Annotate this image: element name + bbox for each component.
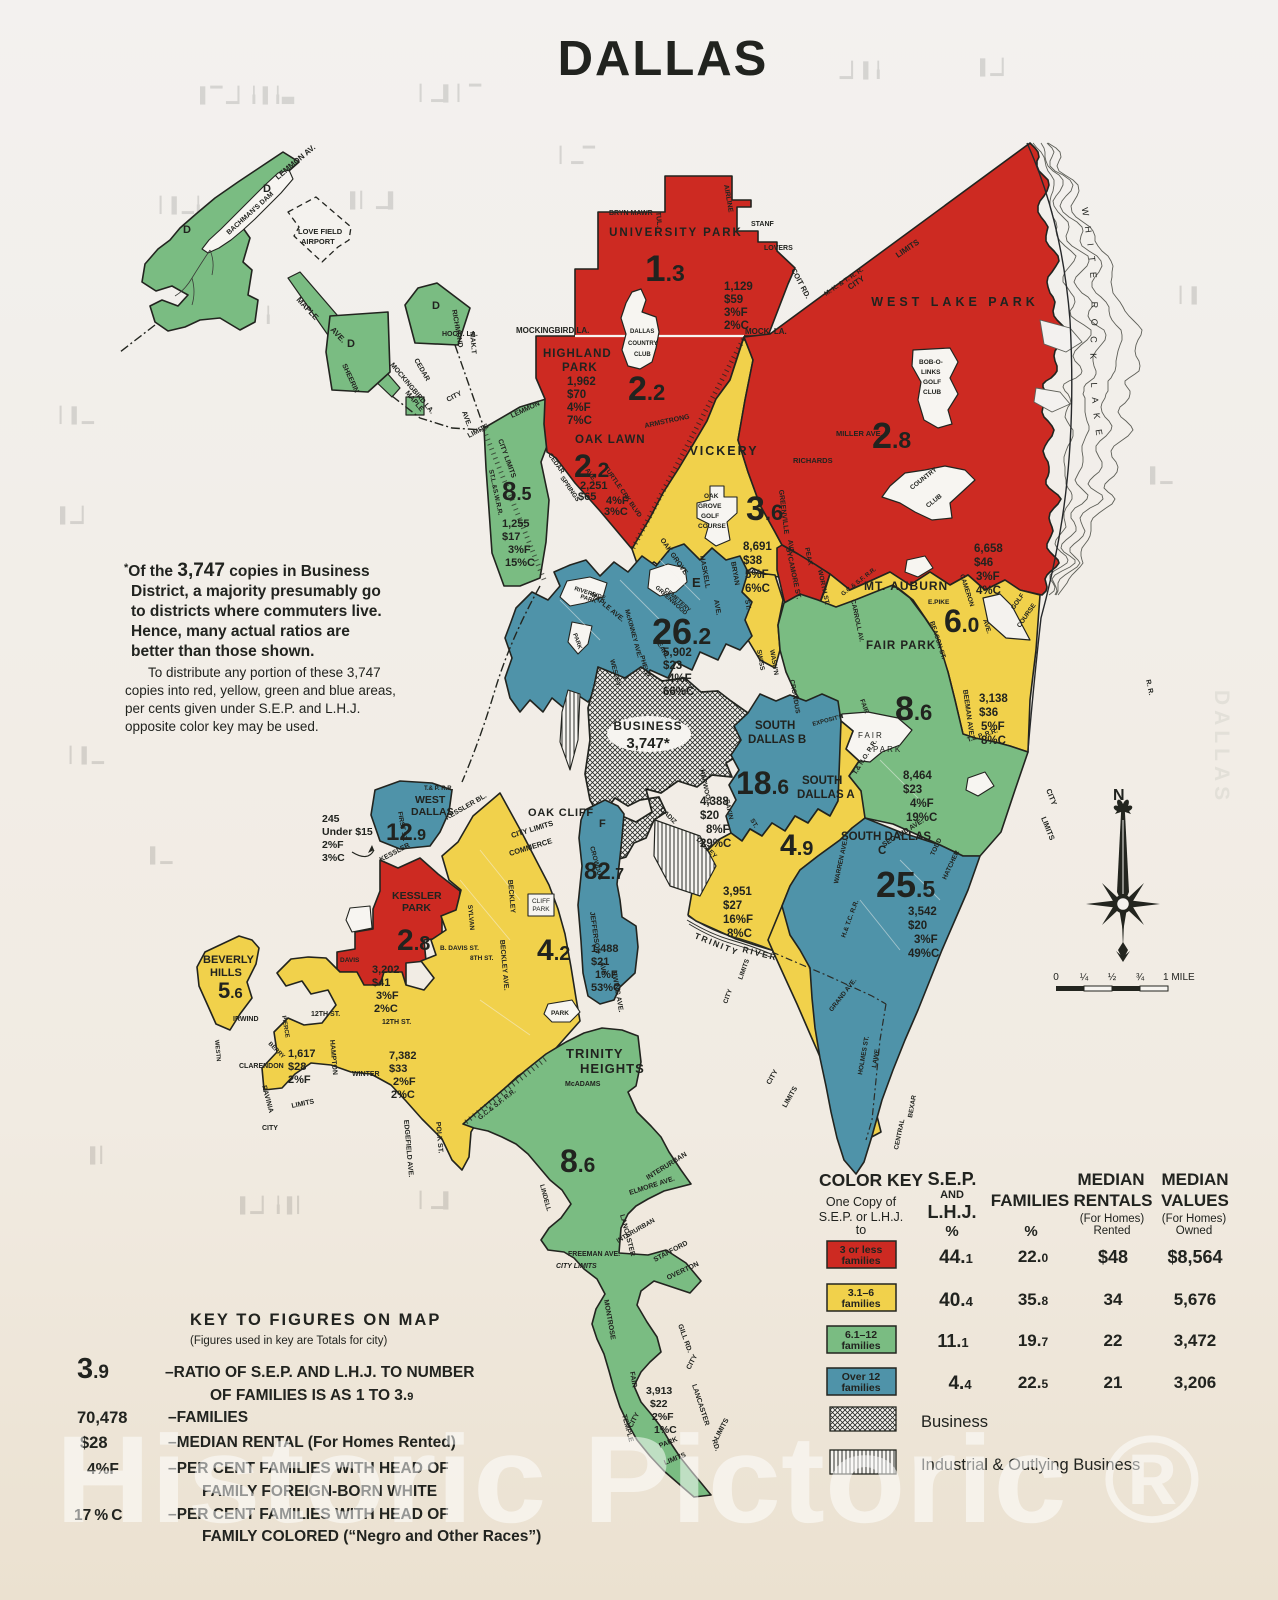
svg-text:40.4: 40.4	[939, 1290, 973, 1311]
svg-text:4%F: 4%F	[910, 798, 934, 810]
svg-text:BEVERLY: BEVERLY	[203, 954, 255, 966]
svg-text:per cents given under S.E.P.: per cents given under S.E.P. and L.H.J.	[125, 701, 360, 716]
svg-text:▌▁▏: ▌▁▏	[980, 57, 1014, 77]
svg-text:KESSLER: KESSLER	[392, 890, 442, 902]
svg-text:5%F: 5%F	[745, 569, 769, 581]
svg-text:$20: $20	[908, 920, 927, 932]
svg-text:DAVIS: DAVIS	[340, 957, 360, 964]
svg-text:RENTALS: RENTALS	[1073, 1191, 1152, 1210]
svg-text:D: D	[183, 224, 191, 236]
svg-text:WINTER: WINTER	[352, 1071, 380, 1078]
svg-text:GOLF: GOLF	[923, 379, 941, 386]
svg-text:AND: AND	[940, 1189, 964, 1201]
svg-text:245: 245	[322, 813, 340, 825]
svg-text:3%F: 3%F	[914, 934, 938, 946]
svg-text:*Of the 3,747 copies in Busine: *Of the 3,747 copies in Business	[124, 560, 370, 581]
svg-text:D: D	[432, 300, 440, 312]
svg-text:Under $15: Under $15	[322, 826, 373, 838]
svg-text:(Figures used in key are Total: (Figures used in key are Totals for city…	[190, 1335, 387, 1347]
svg-text:LINKS: LINKS	[921, 369, 941, 376]
svg-text:$20: $20	[700, 810, 719, 822]
svg-text:▌▁: ▌▁	[150, 846, 173, 865]
svg-text:21: 21	[1104, 1373, 1123, 1392]
svg-text:PARK: PARK	[873, 745, 902, 754]
svg-text:3,202: 3,202	[372, 964, 400, 976]
svg-text:BRYN MAWR: BRYN MAWR	[609, 210, 653, 217]
svg-text:copies into red, yellow, green: copies into red, yellow, green and blue …	[125, 683, 396, 698]
svg-text:4%F: 4%F	[567, 402, 591, 414]
svg-text:Hence, many actual ratios are: Hence, many actual ratios are	[131, 623, 350, 640]
svg-text:8%F: 8%F	[706, 824, 730, 836]
svg-text:$46: $46	[974, 557, 993, 569]
svg-text:families: families	[841, 1382, 880, 1394]
svg-text:PARK: PARK	[562, 362, 598, 374]
svg-text:DALLAS: DALLAS	[1210, 690, 1233, 805]
svg-text:4%C: 4%C	[976, 585, 1001, 597]
svg-text:$28: $28	[288, 1061, 306, 1073]
svg-text:MT. AUBURN: MT. AUBURN	[864, 579, 948, 593]
svg-text:(For Homes): (For Homes)	[1080, 1213, 1145, 1225]
svg-text:OAK CLIFF: OAK CLIFF	[528, 807, 594, 819]
svg-text:GOLF: GOLF	[701, 513, 719, 520]
svg-text:opposite color key may be used: opposite color key may be used.	[125, 719, 319, 734]
svg-text:HEIGHTS: HEIGHTS	[580, 1061, 645, 1076]
svg-text:15%C: 15%C	[505, 557, 535, 569]
svg-text:T.& P. R.R.: T.& P. R.R.	[424, 786, 454, 792]
svg-text:2%F: 2%F	[288, 1074, 311, 1086]
svg-text:$70: $70	[567, 389, 586, 401]
svg-text:1,129: 1,129	[724, 281, 753, 293]
svg-text:DALLAS A: DALLAS A	[797, 789, 855, 801]
svg-text:▏▌▁: ▏▌▁	[69, 745, 104, 765]
svg-text:OAK LAWN: OAK LAWN	[575, 434, 646, 446]
svg-text:–RATIO OF S.E.P. AND L.H.J. TO: –RATIO OF S.E.P. AND L.H.J. TO NUMBER	[165, 1364, 474, 1381]
svg-text:PARK: PARK	[402, 902, 431, 914]
svg-text:▌▔ ▁▏╽ ▌╽▃: ▌▔ ▁▏╽ ▌╽▃	[200, 85, 294, 105]
svg-text:$33: $33	[389, 1063, 407, 1075]
svg-text:$8,564: $8,564	[1167, 1247, 1222, 1267]
svg-text:3,206: 3,206	[1174, 1373, 1217, 1392]
svg-text:COURSE: COURSE	[698, 523, 726, 530]
svg-text:STANF: STANF	[751, 221, 775, 228]
svg-text:D: D	[347, 338, 355, 350]
svg-text:CLARENDON: CLARENDON	[239, 1063, 284, 1070]
svg-text:6%C: 6%C	[745, 583, 770, 595]
svg-text:MOCKINGBIRD LA.: MOCKINGBIRD LA.	[516, 326, 589, 335]
svg-text:COUNTRY: COUNTRY	[628, 341, 657, 347]
svg-text:$23: $23	[903, 784, 922, 796]
svg-text:PARK: PARK	[551, 1010, 569, 1017]
svg-text:$59: $59	[724, 294, 743, 306]
svg-text:$65: $65	[578, 491, 596, 503]
svg-text:UNIVERSITY PARK: UNIVERSITY PARK	[609, 227, 743, 239]
svg-text:families: families	[841, 1255, 880, 1267]
svg-text:DALLAS: DALLAS	[558, 32, 769, 86]
svg-text:E: E	[692, 575, 701, 590]
svg-text:S.E.P.: S.E.P.	[928, 1169, 977, 1189]
svg-text:$38: $38	[743, 555, 763, 567]
svg-text:VICKERY: VICKERY	[689, 444, 758, 458]
svg-text:FAIR: FAIR	[858, 731, 884, 740]
svg-text:CITY LIMITS: CITY LIMITS	[556, 1263, 597, 1270]
svg-text:LOVE FIELD: LOVE FIELD	[298, 227, 343, 236]
svg-text:3%C: 3%C	[604, 506, 628, 518]
svg-text:7%C: 7%C	[567, 415, 592, 427]
svg-text:RICHARDS: RICHARDS	[793, 456, 833, 465]
svg-text:LOVERS: LOVERS	[764, 245, 793, 252]
svg-text:IRWIND: IRWIND	[233, 1016, 259, 1023]
svg-text:(For Homes): (For Homes)	[1162, 1213, 1227, 1225]
svg-text:▌▏ ▁▌: ▌▏ ▁▌	[350, 190, 399, 210]
svg-text:better than those shown.: better than those shown.	[131, 643, 314, 660]
svg-text:▁▏▌╽: ▁▏▌╽	[839, 60, 883, 80]
svg-text:44.1: 44.1	[939, 1247, 973, 1268]
svg-text:E.PIKE: E.PIKE	[928, 599, 950, 606]
svg-text:to districts where commuters l: to districts where commuters live.	[131, 603, 382, 620]
svg-text:2%C: 2%C	[391, 1089, 415, 1101]
svg-text:District, a majority presumabl: District, a majority presumably go	[131, 583, 381, 600]
svg-text:MOCK. LA.: MOCK. LA.	[745, 327, 787, 336]
svg-text:12TH ST.: 12TH ST.	[311, 1011, 340, 1018]
svg-text:CITY: CITY	[262, 1125, 278, 1132]
svg-text:3,472: 3,472	[1174, 1331, 1217, 1350]
svg-text:FAMILIES: FAMILIES	[991, 1191, 1069, 1210]
svg-text:$48: $48	[1098, 1247, 1128, 1267]
svg-text:▌▁: ▌▁	[1150, 466, 1173, 485]
svg-text:1,962: 1,962	[567, 376, 596, 388]
svg-text:5,676: 5,676	[1174, 1290, 1217, 1309]
svg-text:CLUB: CLUB	[634, 352, 651, 358]
svg-text:WEST: WEST	[415, 794, 446, 806]
svg-text:MEDIAN: MEDIAN	[1161, 1170, 1228, 1189]
svg-text:▏▁▔: ▏▁▔	[559, 145, 595, 165]
svg-text:4.4: 4.4	[948, 1373, 972, 1394]
svg-text:▌▁▏: ▌▁▏	[60, 505, 94, 525]
svg-text:12TH ST.: 12TH ST.	[382, 1019, 411, 1026]
svg-text:▏▌▁: ▏▌▁	[59, 405, 94, 425]
svg-text:▏▁▌ ▏▔: ▏▁▌ ▏▔	[419, 83, 481, 103]
svg-text:16%F: 16%F	[723, 914, 753, 926]
svg-text:1 MILE: 1 MILE	[1163, 972, 1195, 983]
svg-text:F: F	[599, 818, 606, 830]
svg-text:▌▁▏╽ ▌▏: ▌▁▏╽ ▌▏	[240, 1195, 309, 1215]
svg-text:SOUTH: SOUTH	[755, 720, 795, 732]
svg-text:3,913: 3,913	[646, 1385, 672, 1397]
svg-text:to: to	[856, 1223, 866, 1237]
svg-text:6,658: 6,658	[974, 543, 1003, 555]
svg-text:MILLER AVE.: MILLER AVE.	[836, 429, 883, 438]
svg-text:$17: $17	[502, 531, 520, 543]
svg-text:¾: ¾	[1136, 972, 1145, 983]
svg-text:7,382: 7,382	[389, 1050, 417, 1062]
svg-text:DALLAS: DALLAS	[630, 329, 654, 335]
svg-text:families: families	[841, 1298, 880, 1310]
svg-text:3,951: 3,951	[723, 886, 752, 898]
svg-text:To distribute any portion of t: To distribute any portion of these 3,747	[148, 665, 381, 680]
svg-text:GROVE: GROVE	[698, 503, 722, 510]
svg-text:FREEMAN AVE.: FREEMAN AVE.	[568, 1251, 620, 1258]
svg-text:FAIR PARK: FAIR PARK	[866, 640, 936, 652]
svg-text:SOUTH: SOUTH	[802, 775, 842, 787]
svg-text:S.E.P. or L.H.J.: S.E.P. or L.H.J.	[819, 1210, 904, 1224]
svg-text:$41: $41	[372, 977, 390, 989]
svg-text:3,747*: 3,747*	[626, 735, 670, 752]
svg-text:▌▏: ▌▏	[90, 1145, 112, 1165]
svg-text:½: ½	[1108, 972, 1117, 983]
svg-text:2%F: 2%F	[322, 839, 344, 851]
svg-text:CLIFF: CLIFF	[532, 898, 550, 905]
svg-text:WEST LAKE PARK: WEST LAKE PARK	[871, 295, 1039, 309]
svg-text:¼: ¼	[1080, 971, 1089, 983]
svg-text:BUSINESS: BUSINESS	[613, 719, 682, 733]
svg-text:66%C: 66%C	[663, 686, 694, 698]
svg-text:MEDIAN: MEDIAN	[1077, 1170, 1144, 1189]
svg-text:$23: $23	[663, 660, 682, 672]
svg-text:8,691: 8,691	[743, 541, 772, 553]
svg-text:Owned: Owned	[1176, 1225, 1212, 1237]
svg-text:34: 34	[1104, 1290, 1123, 1309]
svg-text:3%F: 3%F	[724, 307, 748, 319]
svg-text:%: %	[1024, 1223, 1037, 1240]
svg-text:L.H.J.: L.H.J.	[927, 1202, 976, 1222]
svg-text:▏▌▁╽: ▏▌▁╽	[159, 195, 203, 215]
svg-text:2%F: 2%F	[393, 1076, 416, 1088]
svg-text:$22: $22	[650, 1398, 668, 1410]
svg-text:OAK: OAK	[704, 493, 719, 500]
svg-text:Historic Pictoric ®: Historic Pictoric ®	[56, 1411, 1201, 1549]
svg-text:COLOR KEY: COLOR KEY	[819, 1170, 923, 1190]
svg-text:HIGHLAND: HIGHLAND	[543, 348, 612, 360]
svg-text:▏▌: ▏▌	[1179, 285, 1202, 305]
svg-text:McADAMS: McADAMS	[565, 1081, 601, 1088]
svg-text:AIRPORT: AIRPORT	[301, 237, 335, 246]
svg-text:3%F: 3%F	[508, 544, 531, 556]
svg-text:▏▁▌: ▏▁▌	[419, 1190, 454, 1210]
svg-text:3,542: 3,542	[908, 906, 937, 918]
svg-text:1,617: 1,617	[288, 1048, 316, 1060]
svg-text:8TH ST.: 8TH ST.	[470, 955, 494, 962]
svg-text:49%C: 49%C	[908, 948, 939, 960]
svg-text:3%F: 3%F	[976, 571, 1000, 583]
svg-text:TUL.: TUL.	[654, 212, 662, 228]
svg-text:1,255: 1,255	[502, 518, 530, 530]
svg-text:%: %	[945, 1223, 958, 1240]
svg-text:4%F: 4%F	[668, 673, 692, 685]
svg-text:BOB-O-: BOB-O-	[919, 359, 943, 366]
svg-text:8,464: 8,464	[903, 770, 932, 782]
svg-text:$36: $36	[979, 707, 998, 719]
svg-text:3%F: 3%F	[376, 990, 399, 1002]
svg-text:DALLAS B: DALLAS B	[748, 734, 806, 746]
svg-text:OF FAMILIES IS AS 1 TO 3.9: OF FAMILIES IS AS 1 TO 3.9	[210, 1387, 413, 1404]
svg-text:3,138: 3,138	[979, 693, 1008, 705]
svg-text:B. DAVIS ST.: B. DAVIS ST.	[440, 945, 479, 952]
svg-text:PARK: PARK	[532, 906, 550, 913]
svg-text:KEY TO FIGURES ON MAP: KEY TO FIGURES ON MAP	[190, 1311, 441, 1329]
svg-text:0: 0	[1053, 972, 1059, 983]
svg-text:2%C: 2%C	[374, 1003, 398, 1015]
svg-text:VALUES: VALUES	[1161, 1191, 1229, 1210]
svg-text:TRINITY: TRINITY	[566, 1046, 624, 1061]
svg-text:$27: $27	[723, 900, 742, 912]
svg-text:Rented: Rented	[1093, 1225, 1130, 1237]
svg-text:8%C: 8%C	[727, 928, 752, 940]
svg-text:3%C: 3%C	[322, 852, 345, 864]
svg-text:22: 22	[1104, 1331, 1123, 1350]
svg-text:CLUB: CLUB	[923, 389, 941, 396]
svg-text:One Copy of: One Copy of	[826, 1195, 897, 1209]
svg-text:families: families	[841, 1340, 880, 1352]
